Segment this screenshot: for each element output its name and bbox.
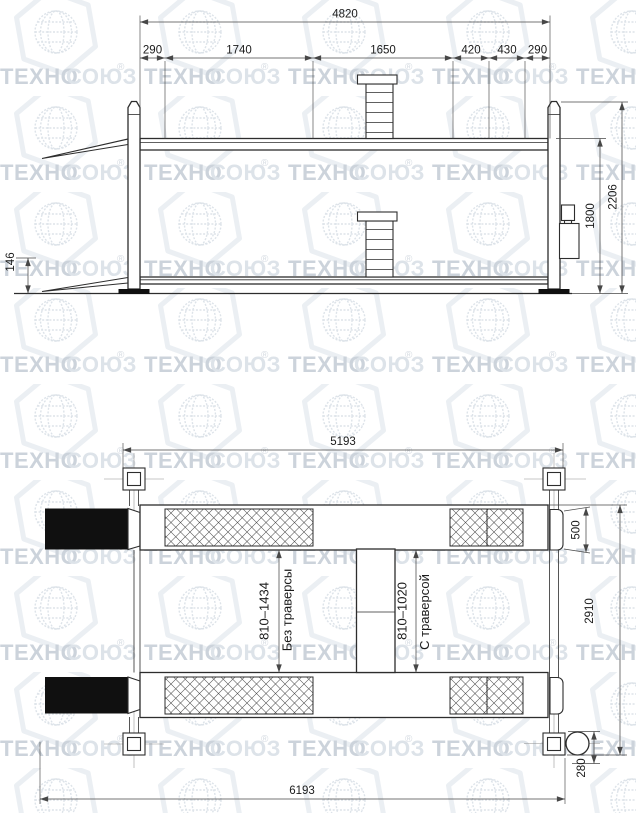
dim-label-gap-no-traverse: 810–1434 — [257, 582, 272, 640]
dim-label-overall-height: 2206 — [608, 184, 620, 210]
power-unit-plan — [566, 732, 589, 755]
post-plate-bottom-right — [543, 733, 565, 755]
wheel-stop-bottom — [550, 678, 563, 715]
plan-ramp-bottom — [45, 677, 140, 714]
wheel-stop-top — [550, 510, 563, 551]
post-plate-bottom-left — [123, 733, 145, 755]
dim-label-seg-2: 1740 — [226, 45, 252, 57]
label-no-traverse: Без траверсы — [280, 569, 295, 652]
label-with-traverse: С траверсой — [417, 574, 432, 650]
dim-label-seg-5: 430 — [497, 45, 516, 57]
traverse-jack-plan — [357, 549, 396, 673]
dim-label-seg-1: 290 — [143, 45, 162, 57]
tread-plate-bottom-left — [165, 677, 313, 714]
dim-label-seg-3: 1650 — [370, 45, 396, 57]
dim-label-runway-width: 500 — [571, 520, 583, 539]
plan-ramp-top — [45, 509, 140, 550]
base-plate-right — [539, 289, 570, 294]
dim-label-platform-height: 1800 — [585, 203, 597, 229]
post-plate-top-right — [543, 468, 565, 490]
runway-lowered-side — [140, 277, 548, 284]
lift-drawing-page: ТЕХНО СОЮЗ ® — [0, 0, 636, 813]
dim-label-post-span: 5193 — [330, 436, 356, 448]
tread-plate-bottom-right-1 — [450, 677, 487, 714]
runway-bottom-plan — [140, 673, 548, 718]
technical-drawing: ТЕХНО СОЮЗ ® — [0, 0, 636, 813]
tread-plate-top-left — [165, 509, 313, 546]
tread-plate-top-right-2 — [487, 509, 523, 546]
dim-label-power-unit-offset: 280 — [576, 758, 588, 777]
dim-label-lowered-height: 146 — [5, 252, 17, 271]
dim-label-gap-with-traverse: 810–1020 — [395, 582, 410, 640]
dim-label-overall-width: 2910 — [584, 598, 596, 624]
post-left-side — [128, 102, 140, 290]
dim-label-total-length: 4820 — [332, 9, 358, 21]
post-plate-top-left — [123, 468, 145, 490]
runway-raised-side — [140, 139, 548, 151]
dim-label-overall-plan-length: 6193 — [289, 785, 315, 797]
tread-plate-bottom-right-2 — [487, 677, 523, 714]
runway-top-plan — [140, 505, 548, 550]
base-plate-left — [119, 289, 150, 294]
tread-plate-top-right-1 — [450, 509, 487, 546]
dim-label-seg-4: 420 — [461, 45, 480, 57]
dim-label-seg-6: 290 — [528, 45, 547, 57]
